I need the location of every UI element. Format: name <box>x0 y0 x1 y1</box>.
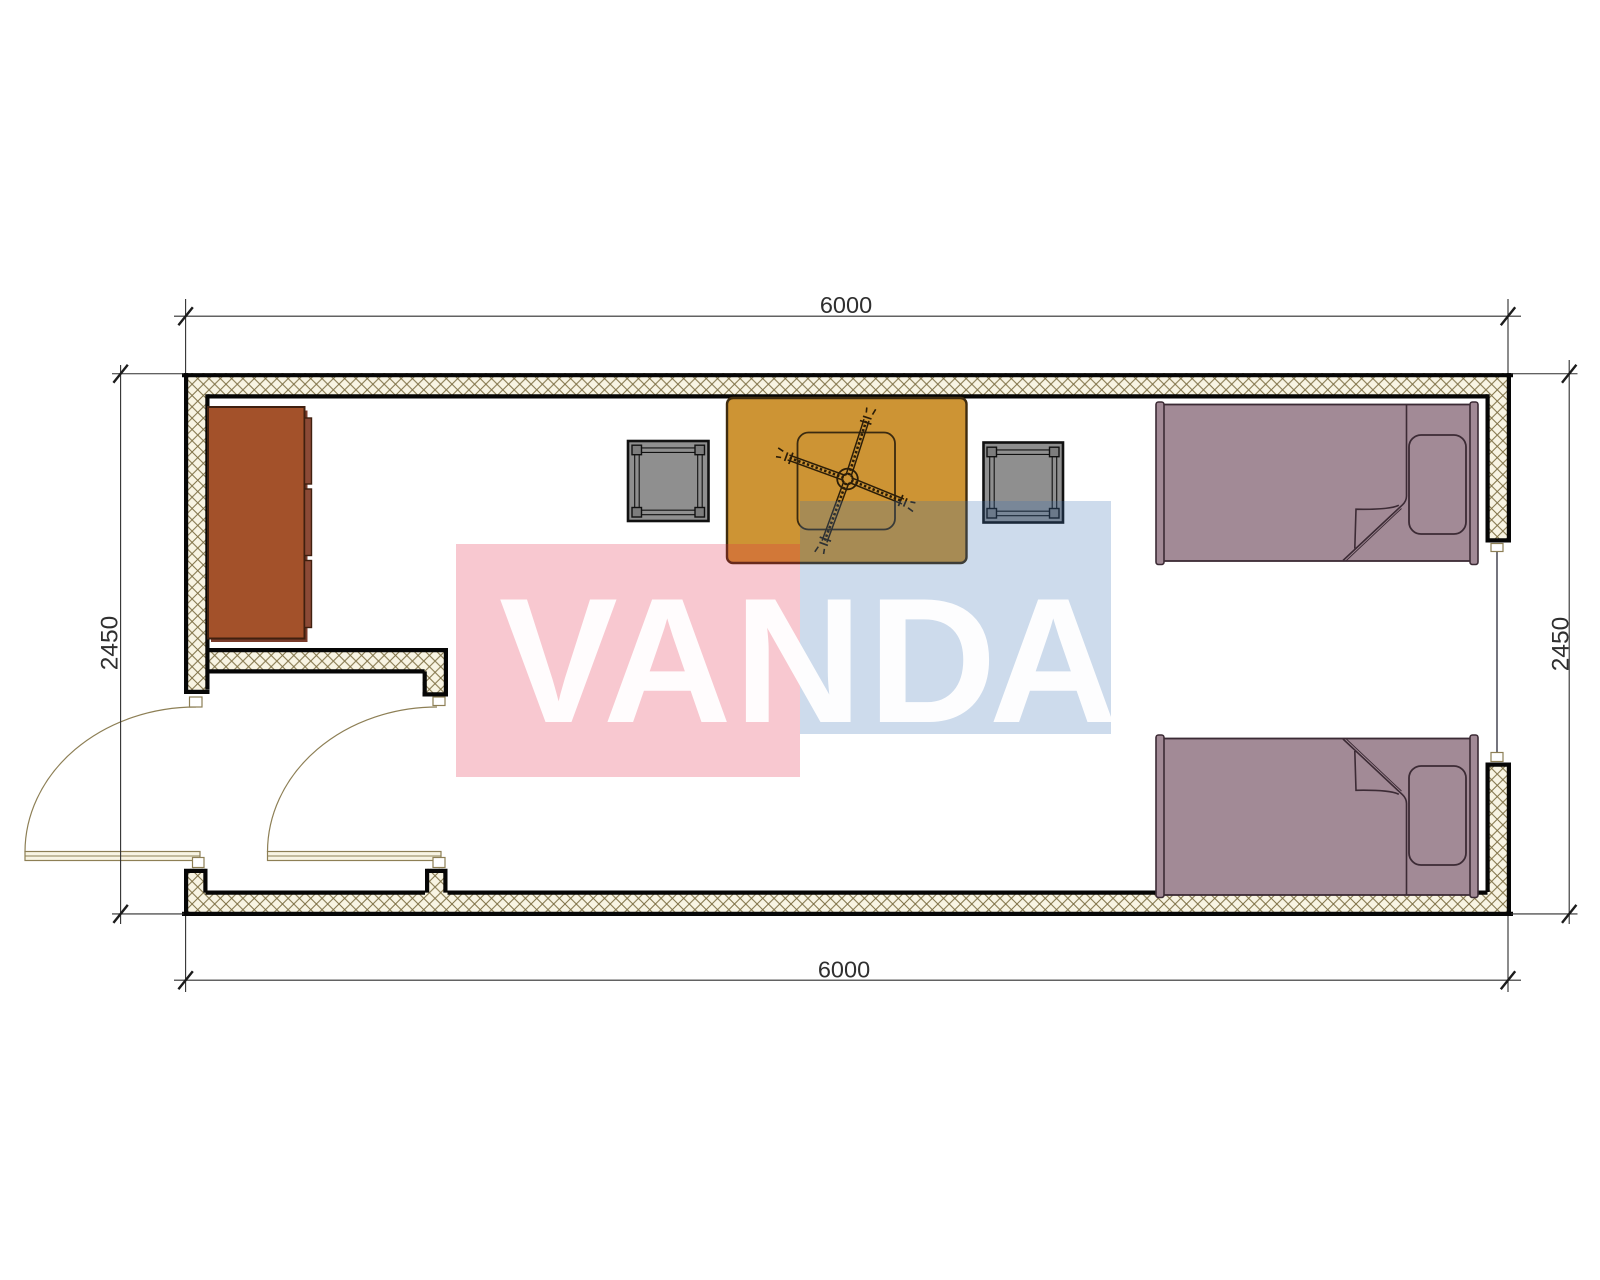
svg-text:6000: 6000 <box>820 292 872 318</box>
svg-text:6000: 6000 <box>818 957 870 983</box>
svg-text:2450: 2450 <box>1548 617 1575 672</box>
svg-text:D: D <box>868 561 997 760</box>
svg-text:2450: 2450 <box>97 616 124 671</box>
svg-text:A: A <box>989 561 1118 760</box>
svg-text:V: V <box>499 561 618 760</box>
svg-text:A: A <box>603 561 732 760</box>
svg-text:N: N <box>734 561 863 760</box>
